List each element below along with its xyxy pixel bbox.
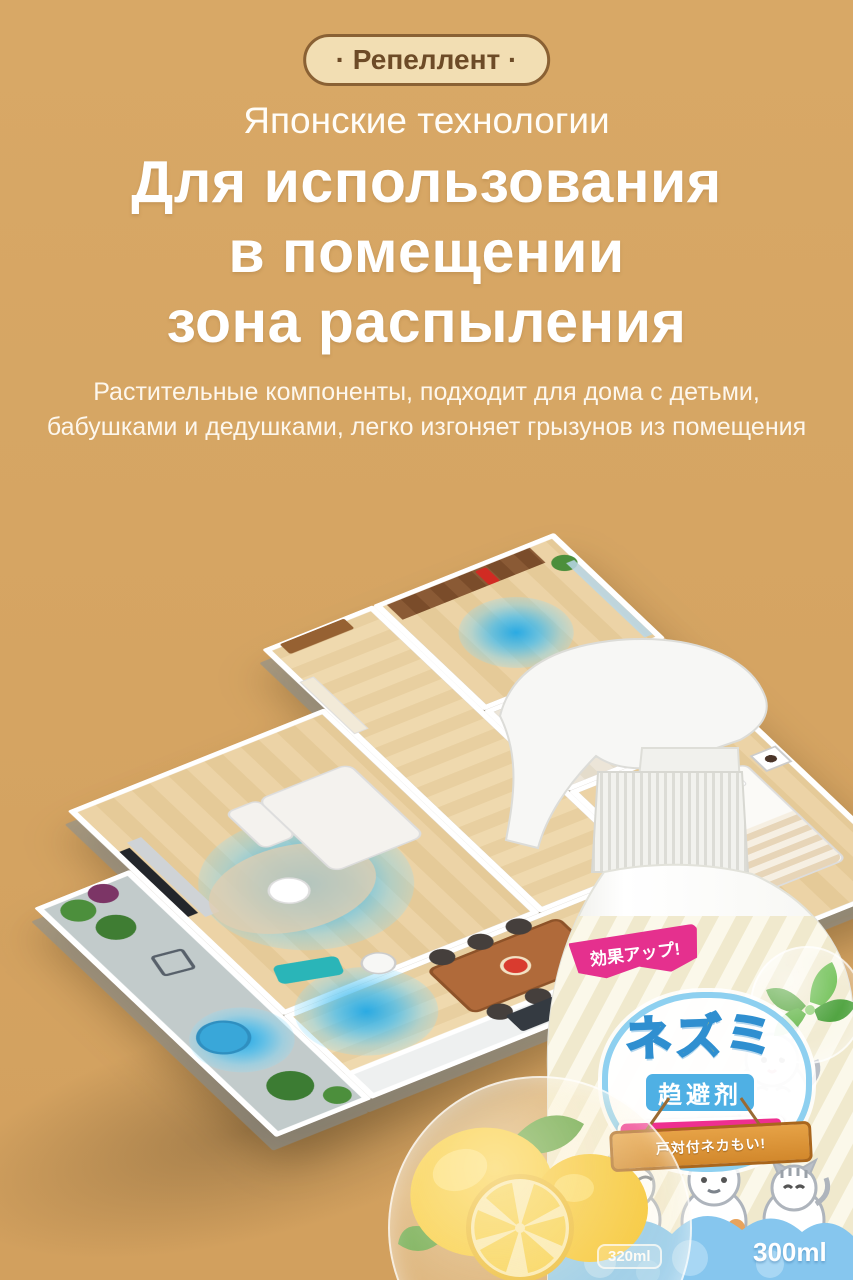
volume-label: 300ml (753, 1237, 827, 1268)
subtitle-line-1: Растительные компоненты, подходит для до… (0, 378, 853, 407)
headline-line-3: зона распыления (0, 288, 853, 356)
headline-line-1: Для использования (0, 148, 853, 216)
headline-kicker: Японские технологии (0, 100, 853, 142)
product-poster: · Репеллент · Японские технологии Для ис… (0, 0, 853, 1280)
category-badge: · Репеллент · (303, 34, 551, 86)
brand-name-jp: ネズミ (589, 994, 811, 1071)
headline-line-2: в помещении (0, 218, 853, 286)
subtitle-line-2: бабушками и дедушками, легко изгоняет гр… (0, 413, 853, 442)
